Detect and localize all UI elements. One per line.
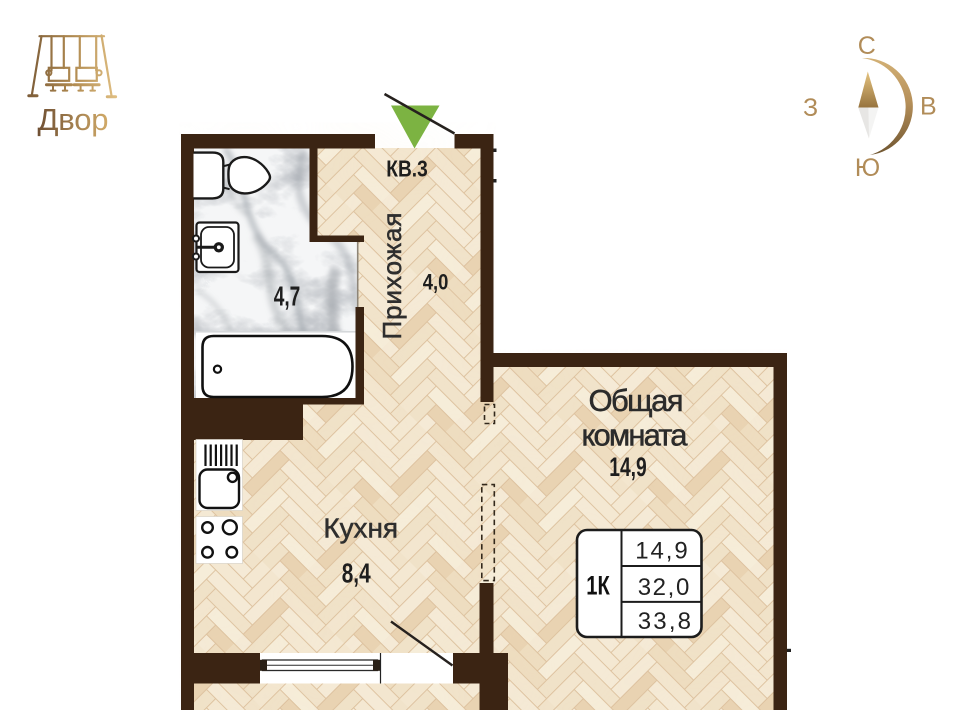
svg-text:З: З xyxy=(803,94,818,122)
svg-text:32,0: 32,0 xyxy=(638,574,690,601)
svg-text:С: С xyxy=(858,32,876,60)
svg-text:Двор: Двор xyxy=(38,102,109,137)
svg-text:Общая: Общая xyxy=(589,383,684,418)
svg-text:комната: комната xyxy=(582,418,689,453)
svg-text:Ю: Ю xyxy=(855,154,880,182)
svg-text:1К: 1К xyxy=(586,571,610,601)
svg-text:4,0: 4,0 xyxy=(423,270,449,295)
svg-text:В: В xyxy=(920,92,937,120)
svg-text:Прихожая: Прихожая xyxy=(377,213,407,340)
svg-text:Кухня: Кухня xyxy=(323,512,398,543)
svg-text:33,8: 33,8 xyxy=(638,608,691,635)
svg-text:8,4: 8,4 xyxy=(342,557,371,588)
svg-text:14,9: 14,9 xyxy=(635,537,688,564)
svg-text:14,9: 14,9 xyxy=(609,452,647,482)
svg-text:4,7: 4,7 xyxy=(274,280,301,311)
svg-text:КВ.3: КВ.3 xyxy=(386,155,428,181)
